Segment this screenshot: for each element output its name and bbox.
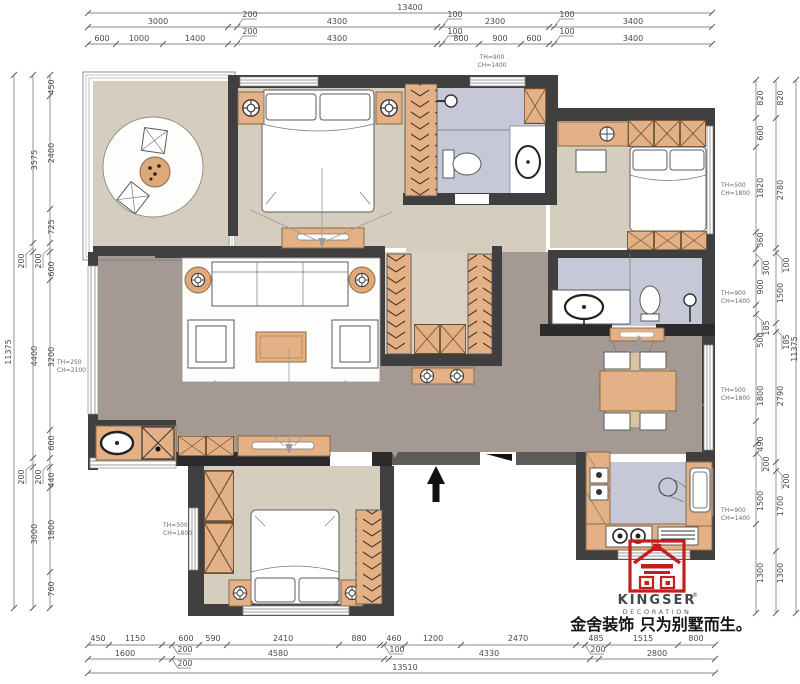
- wardrobe-hall: [405, 84, 437, 196]
- wall-bath2-bottom-a: [540, 324, 612, 336]
- dim-label: 450: [47, 79, 56, 94]
- wall-bath1-right: [545, 118, 557, 205]
- annotation-left-bedroom: CH=1800: [163, 530, 192, 537]
- wash-niche: [96, 426, 176, 460]
- wall-top-right: [550, 108, 715, 121]
- annotation-right4: TH=900: [720, 507, 746, 514]
- bedroom2-wardrobe-cell: [628, 120, 654, 147]
- door-gap-bath1: [455, 194, 489, 204]
- dim-label: 760: [47, 581, 56, 596]
- lamp-target-icon: [233, 586, 246, 599]
- dim-label: 1515: [633, 634, 653, 643]
- balcony-leisure-set: [103, 117, 203, 217]
- dim-label: 1000: [129, 34, 149, 43]
- dimensions-right: 820 600 1820 360 300 900 185 500 1800 49…: [753, 77, 799, 616]
- dim-label: 3575: [30, 150, 39, 170]
- sofa: [212, 262, 348, 306]
- bedroom3-wardrobe-right: [356, 510, 382, 604]
- dim-label: 200: [762, 456, 771, 471]
- dim-label: 590: [205, 634, 220, 643]
- bedroom2-low-wardrobe-cell: [681, 231, 707, 250]
- dim-label: 4300: [327, 34, 347, 43]
- dim-label: 100: [782, 257, 791, 272]
- dim-label: 200: [782, 473, 791, 488]
- tv-side-cabinet-cell: [206, 436, 234, 456]
- dim-label: 600: [526, 34, 541, 43]
- dim-label: 900: [492, 34, 507, 43]
- dim-label: 1700: [776, 496, 785, 516]
- dim-label: 2470: [508, 634, 528, 643]
- logo-tagline: 金舍装饰 只为别墅而生。: [569, 615, 752, 634]
- dim-label: 1200: [423, 634, 443, 643]
- closet-wardrobe-right: [468, 254, 492, 354]
- dim-label: 2790: [776, 386, 785, 406]
- annotation-right2: CH=1400: [721, 298, 750, 305]
- dim-label: 900: [756, 279, 765, 294]
- bedroom2-wardrobe-cell: [654, 120, 680, 147]
- dim-label: 4300: [327, 17, 347, 26]
- dim-label: 2780: [776, 180, 785, 200]
- dim-label: 600: [94, 34, 109, 43]
- dim-label: 500: [756, 332, 765, 347]
- annotation-left-living: CH=2100: [57, 367, 86, 374]
- closet-cabinet-cell: [440, 324, 466, 354]
- master-bed: [262, 90, 374, 212]
- dim-label: 800: [453, 34, 468, 43]
- toilet-base: [641, 314, 659, 321]
- dim-label: 1800: [47, 520, 56, 540]
- dim-label: 1300: [756, 563, 765, 583]
- annotation-right1: TH=500: [720, 182, 746, 189]
- lamp-target-icon: [381, 100, 397, 116]
- dimensions-top: 13400 3000 200 4300 100 2300 100 3400 60…: [85, 3, 715, 47]
- bedroom2-wardrobe-cell: [680, 120, 706, 147]
- floor-corridor2: [500, 252, 550, 362]
- annotation-right1: CH=1800: [721, 190, 750, 197]
- north-arrow-icon: [427, 466, 445, 502]
- dim-label: 1820: [756, 178, 765, 198]
- dimensions-left: 11375 3575 200 4400 200 3000 450 2400 72…: [4, 72, 56, 611]
- armchair-seat: [340, 326, 370, 362]
- dim-label: 800: [688, 634, 703, 643]
- annotation-right3: TH=500: [720, 387, 746, 394]
- dim-label: 2300: [485, 17, 505, 26]
- wall-balcony-divider: [228, 86, 238, 236]
- dim-label: 490: [756, 436, 765, 451]
- dim-label: 3000: [148, 17, 168, 26]
- tv-side-cabinet-cell: [178, 436, 206, 456]
- dim-label: 1800: [756, 386, 765, 406]
- lamp-target-icon: [243, 100, 259, 116]
- bedroom3-wardrobe-cell: [204, 522, 234, 574]
- bath1-cabinet: [524, 88, 546, 124]
- dining-chair: [640, 352, 666, 369]
- window-bedroom3-bottom: [243, 606, 349, 615]
- shower-head-icon: [445, 95, 457, 107]
- toilet-bowl: [453, 153, 481, 175]
- dim-label: 460: [386, 634, 401, 643]
- dim-label: 600: [47, 261, 56, 276]
- annotation-top: TH=900: [479, 54, 505, 61]
- dim-label: 2410: [273, 634, 293, 643]
- dim-label: 1600: [115, 649, 135, 658]
- bedroom2-nightstand: [576, 150, 606, 172]
- dim-label: 1500: [776, 283, 785, 303]
- side-table-target-icon: [355, 273, 368, 286]
- dim-label: 450: [90, 634, 105, 643]
- dim-label: 200: [17, 469, 26, 484]
- annotation-left-bedroom: TH=500: [162, 522, 188, 529]
- dim-label: 820: [756, 90, 765, 105]
- dining-chair: [604, 352, 630, 369]
- dim-label: 300: [762, 260, 771, 275]
- dim-label: 200: [34, 253, 43, 268]
- dim-label: 200: [590, 645, 605, 654]
- dim-label: 600: [47, 435, 56, 450]
- annotation-left-living: TH=250: [56, 359, 82, 366]
- dim-label: 600: [756, 125, 765, 140]
- dim-label: 11375: [790, 336, 799, 361]
- dim-label: 100: [559, 27, 574, 36]
- door-gap-bedroom3: [330, 452, 372, 466]
- dim-label: 2400: [47, 143, 56, 163]
- dim-label: 4580: [268, 649, 288, 658]
- dim-label: 200: [177, 659, 192, 668]
- dining-table: [600, 371, 676, 411]
- wall-closet-right: [492, 246, 502, 366]
- window-top-bath1: [470, 77, 525, 86]
- annotation-top: CH=1400: [478, 62, 507, 69]
- dim-label: 11375: [4, 339, 13, 364]
- dim-label: 200: [242, 10, 257, 19]
- dim-label: 3200: [47, 347, 56, 367]
- dim-label: 360: [756, 232, 765, 247]
- dim-label: 100: [389, 645, 404, 654]
- dim-label: 13510: [392, 663, 417, 672]
- dim-label: 3400: [623, 17, 643, 26]
- wall-closet-bottom: [375, 354, 502, 366]
- dim-label: 4400: [30, 346, 39, 366]
- dimensions-bottom: 450 1150 200 600 590 2410 880 100 460 12…: [85, 634, 718, 676]
- dresser-target-icon: [450, 369, 463, 382]
- dim-label: 200: [177, 645, 192, 654]
- dim-label: 200: [242, 27, 257, 36]
- side-table-target-icon: [191, 273, 204, 286]
- dim-label: 725: [47, 219, 56, 234]
- dim-label: 1300: [776, 563, 785, 583]
- wall-bedroom2-bottom: [548, 250, 706, 258]
- dim-label: 3400: [623, 34, 643, 43]
- bedroom2-low-wardrobe-cell: [654, 231, 681, 250]
- dim-label: 4330: [479, 649, 499, 658]
- toilet-tank: [443, 150, 454, 178]
- toilet-bowl: [640, 286, 660, 314]
- dim-label: 100: [447, 10, 462, 19]
- logo-registered-mark: ®: [692, 592, 698, 599]
- floor-plan-drawing: 13400 3000 200 4300 100 2300 100 3400 60…: [0, 0, 800, 684]
- dining-chair: [604, 413, 630, 430]
- annotation-right4: CH=1400: [721, 515, 750, 522]
- armchair-seat: [196, 326, 226, 362]
- dim-label: 100: [559, 10, 574, 19]
- dim-label: 1400: [185, 34, 205, 43]
- shower-head-icon: [684, 294, 696, 306]
- dim-label: 1150: [125, 634, 145, 643]
- coffee-table: [256, 332, 306, 362]
- dim-label: 2800: [647, 649, 667, 658]
- dim-label: 600: [178, 634, 193, 643]
- annotation-right2: TH=900: [720, 290, 746, 297]
- dim-label: 3000: [30, 524, 39, 544]
- dim-label: 880: [351, 634, 366, 643]
- window-top-master: [240, 77, 318, 86]
- closet-wardrobe-left: [387, 254, 411, 354]
- window-dining-right: [704, 345, 713, 450]
- dim-label: 820: [776, 90, 785, 105]
- bedroom2-low-wardrobe-cell: [627, 231, 654, 250]
- dim-label: 440: [47, 472, 56, 487]
- closet-cabinet-cell: [414, 324, 440, 354]
- dresser-target-icon: [420, 369, 433, 382]
- dim-label: 485: [588, 634, 603, 643]
- bedroom2-desk: [558, 122, 628, 146]
- bedroom3-wardrobe-cell: [204, 470, 234, 522]
- annotation-right3: CH=1800: [721, 395, 750, 402]
- wall-balcony-bottom: [93, 246, 163, 256]
- dim-label: 200: [17, 253, 26, 268]
- dining-chair: [640, 413, 666, 430]
- floor-plan-canvas: 13400 3000 200 4300 100 2300 100 3400 60…: [0, 0, 800, 684]
- dim-label: 1500: [756, 491, 765, 511]
- window-living-left: [88, 266, 98, 414]
- wall-bath2-bottom-b: [656, 324, 715, 336]
- window-bedroom3-left: [189, 508, 198, 570]
- dim-label: 13400: [397, 3, 422, 12]
- wall-kitchen-top-b: [686, 452, 715, 463]
- floor-kitchen: [604, 462, 688, 526]
- dim-label: 200: [34, 469, 43, 484]
- logo-brand-text: KINGSER: [618, 593, 697, 608]
